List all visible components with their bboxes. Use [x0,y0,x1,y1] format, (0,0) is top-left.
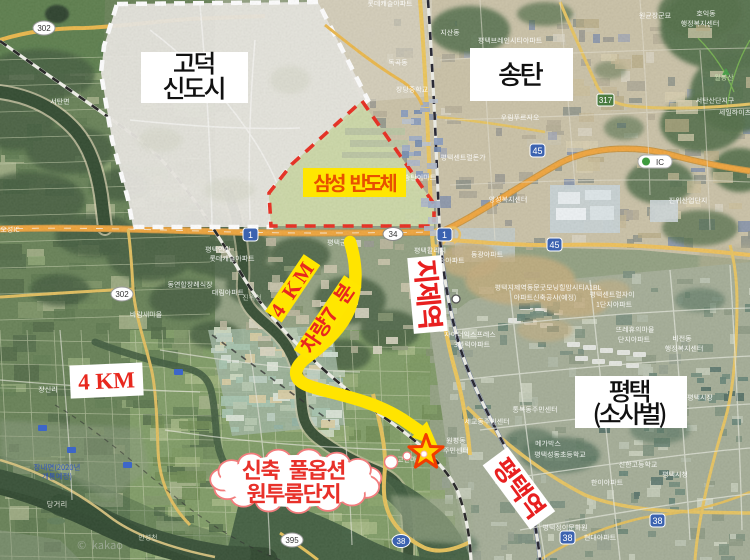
svg-text:38: 38 [652,516,662,526]
svg-text:IC: IC [656,158,664,167]
svg-text:1: 1 [248,230,253,240]
svg-text:395: 395 [285,536,299,545]
svg-text:38: 38 [562,533,572,543]
svg-text:38: 38 [397,537,406,546]
svg-text:302: 302 [37,24,51,33]
svg-text:45: 45 [549,240,559,250]
svg-text:34: 34 [389,230,398,239]
svg-text:4 KM: 4 KM [78,367,136,394]
svg-text:317: 317 [599,96,613,105]
svg-text:45: 45 [532,146,542,156]
svg-text:302: 302 [115,290,129,299]
svg-text:1: 1 [442,230,447,240]
